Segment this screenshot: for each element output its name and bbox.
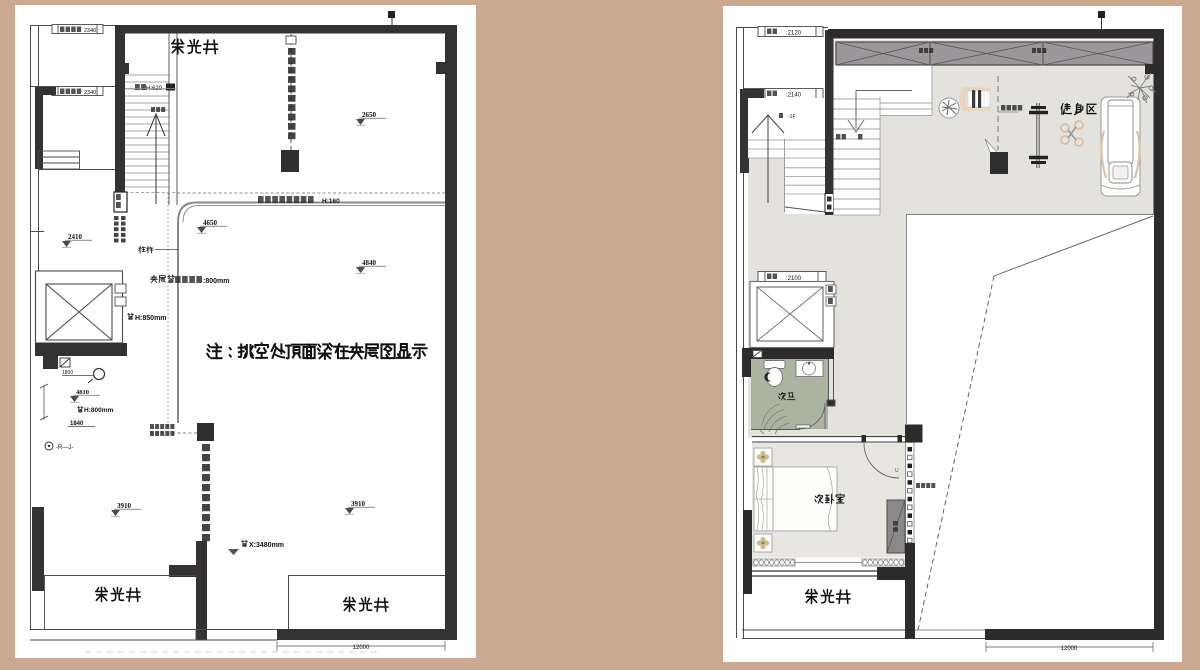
svg-text::2120: :2120 (786, 31, 802, 37)
svg-text:X:3480mm: X:3480mm (249, 542, 284, 549)
svg-text:-R—J-: -R—J- (56, 445, 73, 451)
svg-text:H:620: H:620 (146, 86, 163, 92)
svg-text:4840: 4840 (362, 259, 377, 267)
svg-text:H:800mm: H:800mm (84, 407, 113, 414)
svg-text:1840: 1840 (70, 421, 84, 427)
svg-text:12000: 12000 (1061, 646, 1078, 652)
svg-text:3910: 3910 (117, 502, 132, 510)
svg-text:-1F: -1F (788, 114, 796, 120)
svg-text:3910: 3910 (351, 500, 366, 508)
svg-text:2410: 2410 (68, 233, 83, 241)
svg-text:U: U (895, 468, 899, 474)
svg-text:2340: 2340 (84, 28, 96, 34)
svg-text:2650: 2650 (362, 111, 377, 119)
svg-text:H:850mm: H:850mm (135, 315, 167, 322)
svg-text::800mm: :800mm (203, 278, 229, 285)
svg-text:1800: 1800 (62, 370, 73, 376)
svg-text:4650: 4650 (203, 219, 218, 227)
svg-text:H:160: H:160 (322, 198, 340, 205)
svg-text:2340: 2340 (84, 90, 96, 96)
svg-text:12000: 12000 (353, 645, 370, 651)
svg-text::2140: :2140 (786, 93, 802, 99)
